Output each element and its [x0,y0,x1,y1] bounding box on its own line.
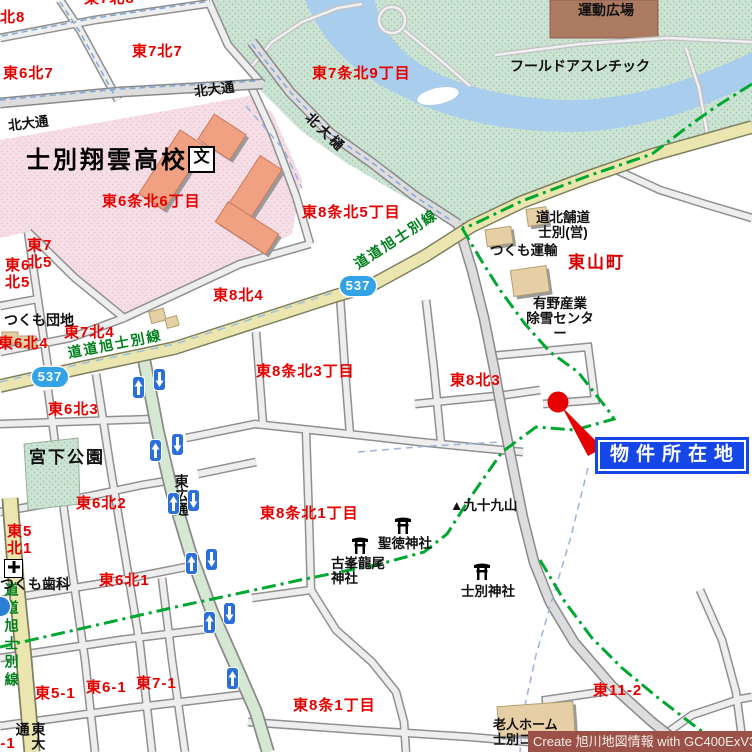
map-container[interactable]: 北8 東7北8 東6北7 東7北7 東7条北9丁目 東6条北6丁目 東8条北5丁… [0,0,752,752]
route-537-shield-west: 537 [32,367,68,387]
hospital-icon [4,559,23,578]
one-way-down-icon [172,434,183,455]
miyashita-park-area [24,438,80,510]
shrine-icons [352,518,490,581]
one-way-down-icon [154,369,165,390]
one-way-up-icon [133,377,144,398]
property-callout-label: 物件所在地 [600,442,744,469]
one-way-up-icon [150,440,161,461]
map-credit: Create 旭川地図情報 with GC400ExV3 [528,731,752,752]
pref-road-south [10,498,32,752]
one-way-down-icon [206,549,217,570]
one-way-down-icon [188,490,199,511]
sports-plaza-building [550,0,658,38]
one-way-down-icon [224,603,235,624]
school-symbol-icon: 文 [188,146,215,173]
property-callout[interactable]: 物件所在地 [595,437,749,474]
one-way-up-icon [168,493,179,514]
one-way-up-icon [204,612,215,633]
one-way-up-icon [186,553,197,574]
one-way-up-icon [227,668,238,689]
route-537-shield-east: 537 [340,276,376,296]
map-canvas [0,0,752,752]
